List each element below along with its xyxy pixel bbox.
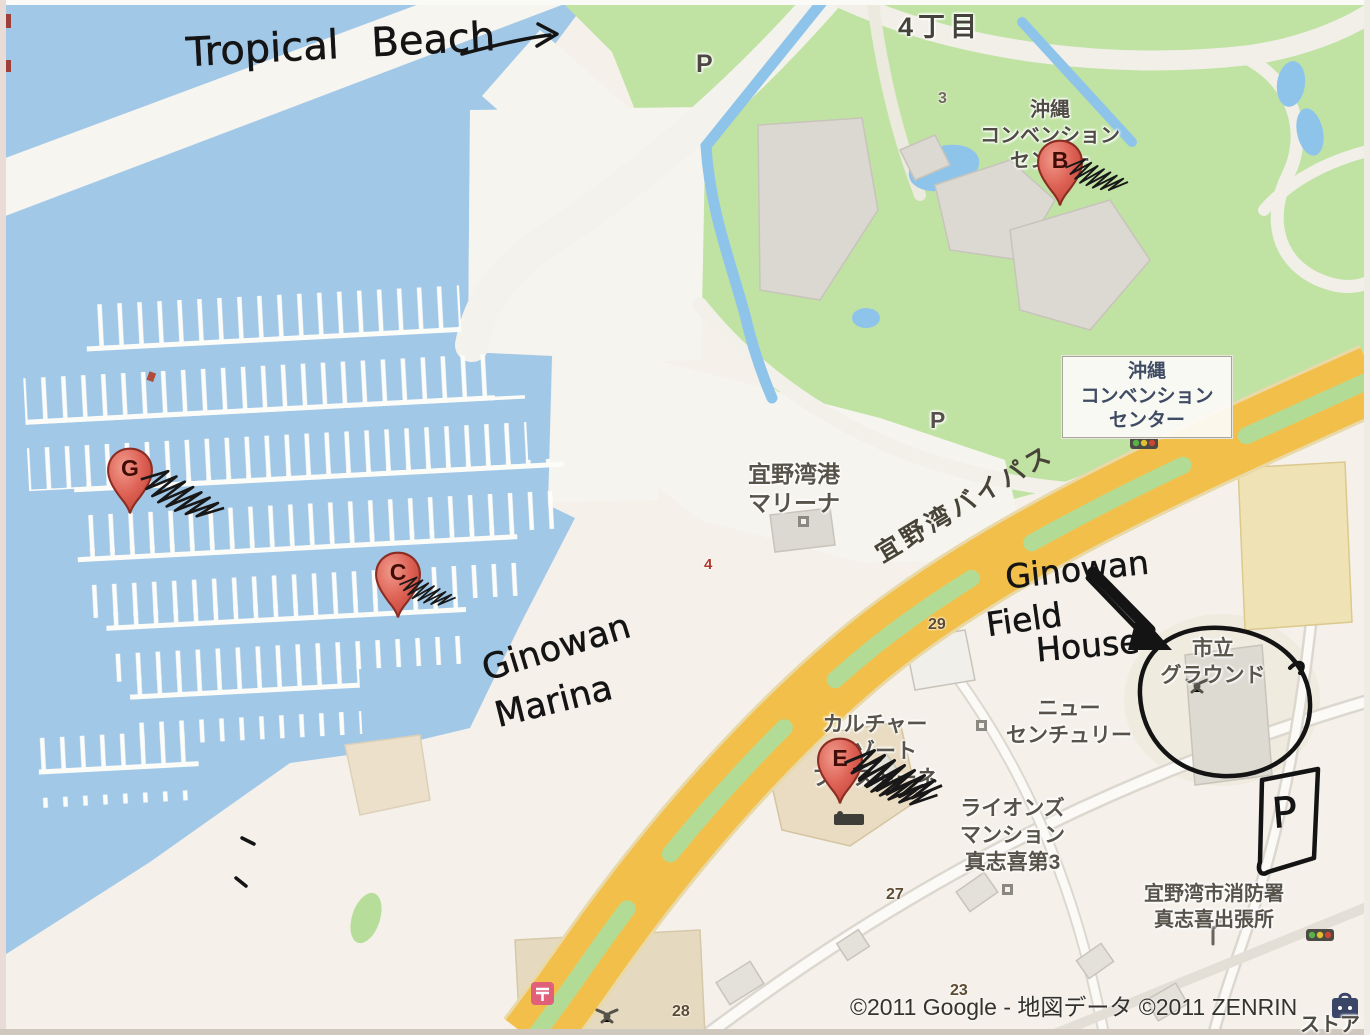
hw-parking-letter: P [1270, 787, 1300, 838]
convention-center-box-label: 沖縄 コンベンション センター [1062, 356, 1232, 438]
block-number-4: 4 [704, 556, 712, 573]
culture-resort-festone-label: カルチャー リゾート フェストーネ [786, 712, 964, 793]
map-pin-g: G [106, 446, 154, 516]
pin-letter: B [1036, 147, 1084, 174]
map-pin-b: B [1036, 138, 1084, 208]
store-partial-label: ストア [1300, 1013, 1360, 1035]
block-number-29: 29 [928, 616, 946, 634]
city-ground-label: 市立 グラウンド [1148, 636, 1278, 690]
block-number-28: 28 [672, 1003, 690, 1021]
pin-letter: G [106, 455, 154, 482]
parking-p-north: P [696, 48, 713, 80]
traffic-light-icon [1130, 437, 1158, 449]
map-pin-c: C [374, 550, 422, 620]
base-map-art [0, 0, 1370, 1035]
ginowan-port-marina-label: 宜野湾港 マリーナ [748, 460, 873, 519]
new-century-label: ニュー センチュリー [995, 696, 1143, 750]
pin-letter: C [374, 559, 422, 586]
block-number-27: 27 [886, 886, 904, 904]
pin-letter: E [816, 745, 864, 772]
scanned-map-canvas: 4丁目 3 沖縄 コンベンション センター 沖縄 コンベンション センター 宜野… [0, 0, 1370, 1035]
copyright-text: ©2011 Google - 地図データ ©2011 ZENRIN [850, 993, 1297, 1022]
parking-p-park: P [930, 406, 945, 435]
block-number-3: 3 [938, 90, 947, 108]
lions-mansion-label: ライオンズ マンション 真志喜第3 [950, 796, 1075, 877]
district-block-label: 4丁目 [898, 10, 982, 45]
fire-station-label: 宜野湾市消防署 真志喜出張所 [1128, 882, 1300, 933]
traffic-light-icon [1306, 929, 1334, 941]
post-office-icon [531, 982, 554, 1005]
map-pin-e: E [816, 736, 864, 806]
